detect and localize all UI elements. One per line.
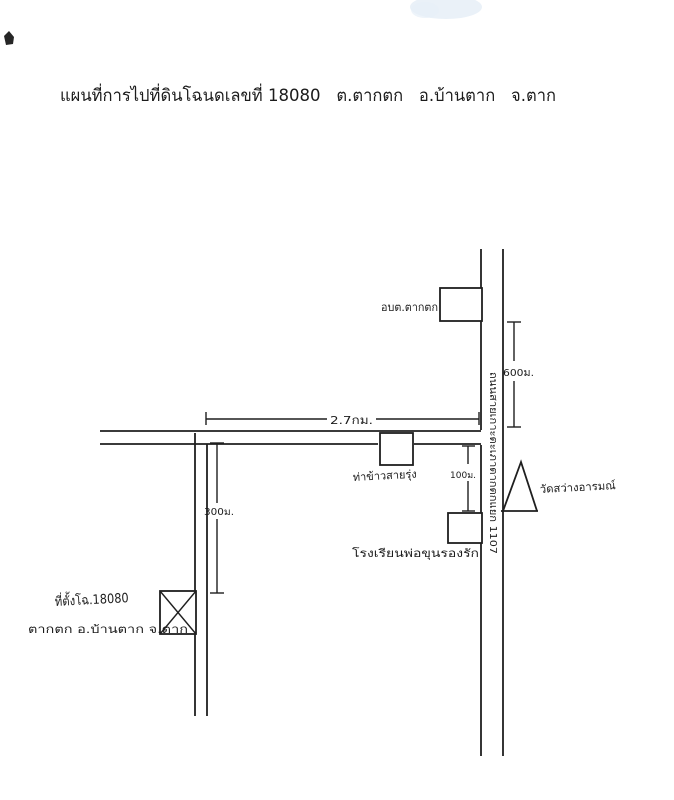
sao-office-label: อบต.ตากตก <box>381 301 438 314</box>
rice-station-label: ท่าข้าวสายรุ่ง <box>352 468 417 484</box>
map-title: แผนที่การไปที่ดินโฉนดเลขที่ 18080 ต.ตากต… <box>60 83 556 106</box>
dim-600-label: 600ม. <box>503 368 534 379</box>
school-label: โรงเรียนพ่อขุนรองรัก <box>352 546 479 560</box>
school-building <box>448 513 482 543</box>
dim-100-label: 100ม. <box>450 471 476 481</box>
sao-office-building <box>440 288 482 321</box>
temple-triangle <box>501 462 538 511</box>
site-subtitle-label: ตากตก อ.บ้านตาก จ.ตาก <box>28 623 188 636</box>
ink-blot <box>4 31 14 45</box>
site-title-label: ที่ตั้งโฉ.18080 <box>54 588 129 610</box>
dim-300-label: 300ม. <box>204 507 234 518</box>
map-canvas: แผนที่การไปที่ดินโฉนดเลขที่ 18080 ต.ตากต… <box>0 0 674 800</box>
dim-27-label: 2.7กม. <box>330 414 373 427</box>
temple-label: วัดสว่างอารมณ์ <box>539 479 616 496</box>
scanned-map-page: แผนที่การไปที่ดินโฉนดเลขที่ 18080 ต.ตากต… <box>0 0 674 800</box>
scan-smudge-2 <box>411 2 439 18</box>
rice-station-building <box>380 433 413 465</box>
road-name-label: ถนนสายเกาะตะเภาตากตกแยก 1107 <box>487 372 498 554</box>
